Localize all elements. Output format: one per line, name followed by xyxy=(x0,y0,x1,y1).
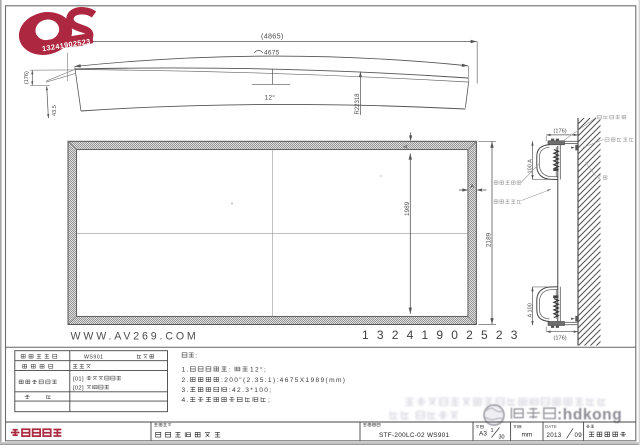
svg-text:(176): (176) xyxy=(554,128,567,134)
svg-text::: : xyxy=(229,367,232,374)
svg-text:A: A xyxy=(404,145,410,149)
svg-text:12°: 12° xyxy=(265,93,276,101)
svg-text:4.: 4. xyxy=(182,397,190,404)
svg-text:(176): (176) xyxy=(24,71,30,84)
svg-text::hdkong: :hdkong xyxy=(557,407,622,424)
svg-text:(176): (176) xyxy=(554,335,567,341)
svg-text:43.5: 43.5 xyxy=(52,105,58,116)
svg-text:(4865): (4865) xyxy=(261,31,284,40)
svg-text:WS901: WS901 xyxy=(84,354,104,360)
svg-text:STF-200LC-02 WS901: STF-200LC-02 WS901 xyxy=(379,432,450,439)
svg-text::42.3*100;: :42.3*100; xyxy=(229,387,273,394)
svg-text::: : xyxy=(195,353,197,360)
svg-text:[02]: [02] xyxy=(73,385,84,391)
svg-text::200"(2.35:1):4675X1989(mm): :200"(2.35:1):4675X1989(mm) xyxy=(221,377,346,384)
svg-text:DATE: DATE xyxy=(545,424,557,429)
svg-text:A: A xyxy=(470,184,474,190)
svg-text:4675: 4675 xyxy=(264,50,280,57)
svg-text:WWW.AV269.COM: WWW.AV269.COM xyxy=(71,331,199,343)
svg-text:A3: A3 xyxy=(479,431,487,438)
svg-text:30: 30 xyxy=(499,435,505,441)
svg-text:A 100: A 100 xyxy=(527,303,533,317)
svg-text:mm: mm xyxy=(522,432,533,439)
svg-text:R22318: R22318 xyxy=(355,93,361,115)
svg-text:;: ; xyxy=(268,397,271,404)
svg-text:2013: 2013 xyxy=(547,432,562,439)
svg-text:09: 09 xyxy=(575,432,583,439)
svg-text:3.: 3. xyxy=(182,387,190,394)
svg-text:1: 1 xyxy=(491,428,494,434)
svg-text:2189: 2189 xyxy=(486,232,493,247)
svg-text:[01]: [01] xyxy=(73,376,84,382)
svg-text:1.: 1. xyxy=(182,367,190,374)
svg-text:2.: 2. xyxy=(182,377,190,384)
svg-text:1989: 1989 xyxy=(404,201,411,216)
svg-text:13241902523: 13241902523 xyxy=(362,328,526,342)
svg-text:12°;: 12°; xyxy=(250,366,267,374)
svg-text:100 A: 100 A xyxy=(527,159,533,174)
